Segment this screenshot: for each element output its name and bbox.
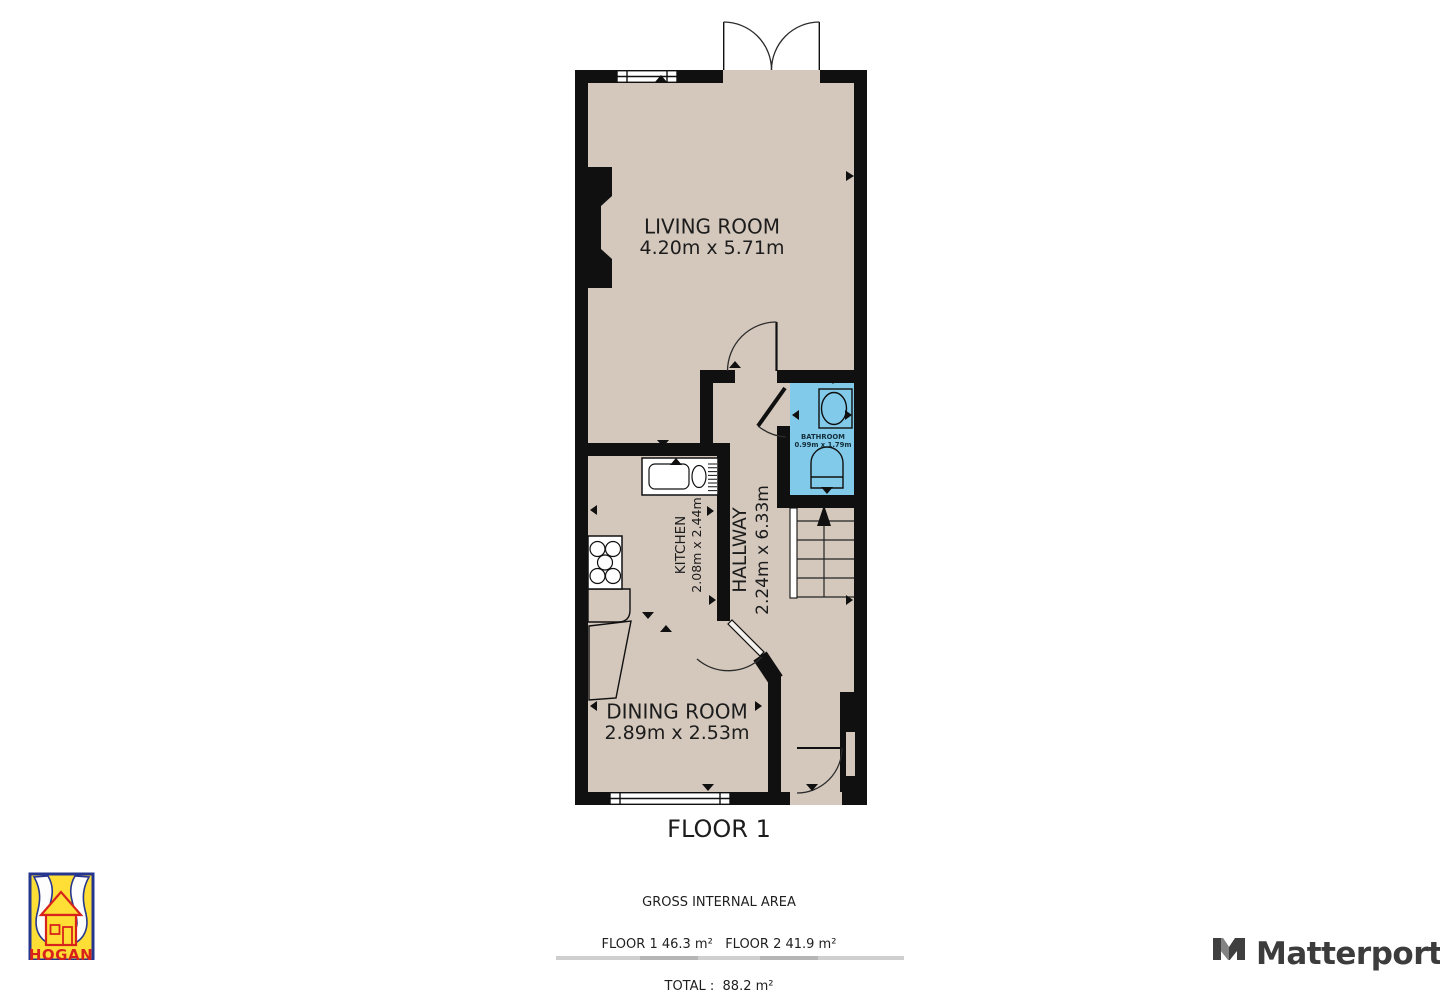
kitchen-dims: 2.08m x 2.44m [689,497,705,592]
bathroom-label-group: BATHROOM 0.99m x 1.79m [794,433,851,449]
hallway-label-group: HALLWAY 2.24m x 6.33m [730,485,774,615]
hallway-dims: 2.24m x 6.33m [752,485,774,615]
agency-logo-text: HOGAN [29,946,93,964]
kitchen-label-group: KITCHEN 2.08m x 2.44m [673,497,705,592]
bathroom-dims: 0.99m x 1.79m [794,441,851,449]
floor-title: FLOOR 1 [667,816,771,844]
hallway-label: HALLWAY [730,485,752,615]
door-niche [846,732,855,776]
living-room-label: LIVING ROOM [644,216,780,239]
window-living [617,71,677,83]
french-doors [723,22,820,83]
kitchen-label: KITCHEN [673,497,689,592]
dining-room-dims: 2.89m x 2.53m [605,723,750,745]
window-dining [610,793,730,805]
hob-icon [588,536,622,589]
living-room-dims: 4.20m x 5.71m [640,238,785,260]
area-summary-floors: FLOOR 1 46.3 m² FLOOR 2 41.9 m² [602,938,837,952]
bathroom-label: BATHROOM [794,433,851,441]
floor-plan-page: { "plan": { "floor_title": "FLOOR 1", "r… [0,0,1440,960]
matterport-logo-text: Matterport [1256,936,1440,972]
matterport-logo-icon [1213,938,1245,960]
area-summary-title: GROSS INTERNAL AREA [602,896,837,910]
chimney-recess [601,196,612,259]
kitchen-counter [588,589,630,622]
area-summary-total: TOTAL : 88.2 m² [602,980,837,994]
dining-room-label: DINING ROOM [606,701,748,724]
area-summary: GROSS INTERNAL AREA FLOOR 1 46.3 m² FLOO… [602,868,837,1008]
